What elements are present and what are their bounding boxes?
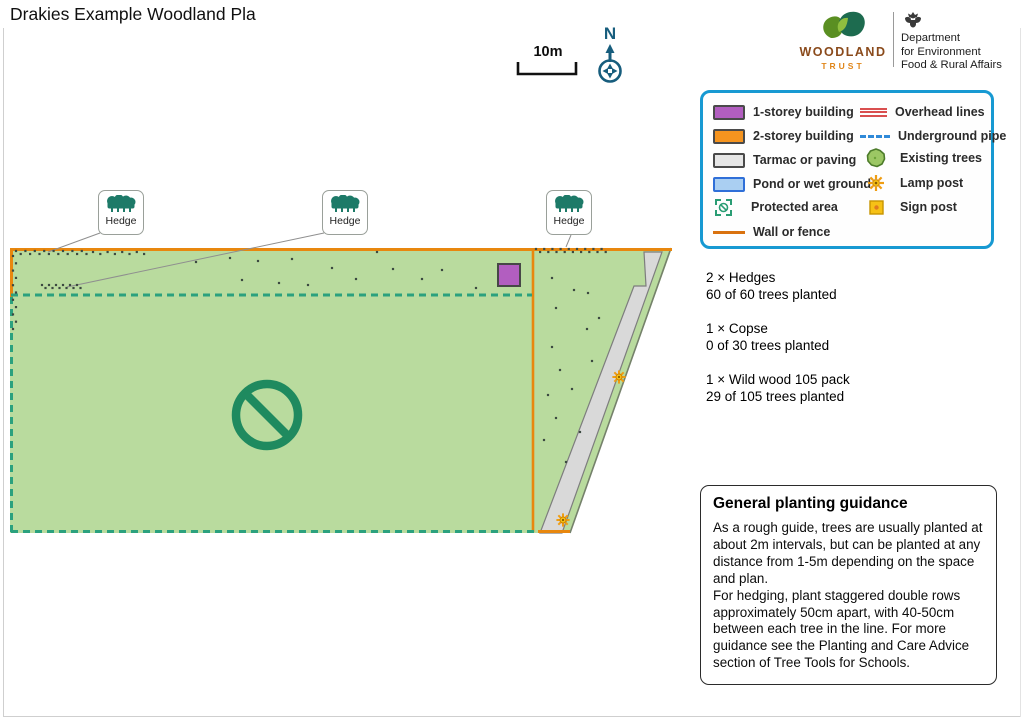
planted-tree-dot bbox=[69, 284, 71, 286]
hedge-icon bbox=[553, 195, 585, 214]
hedge-callout-label: Hedge bbox=[330, 215, 361, 227]
planted-tree-dot bbox=[12, 284, 14, 286]
planted-tree-dot bbox=[565, 461, 567, 463]
planted-tree-dot bbox=[12, 270, 14, 272]
planted-tree-dot bbox=[605, 251, 607, 253]
planted-tree-dot bbox=[551, 346, 553, 348]
hedge-callout: Hedge bbox=[546, 190, 592, 235]
planted-tree-dot bbox=[128, 253, 130, 255]
planted-tree-dot bbox=[43, 250, 45, 252]
planted-tree-dot bbox=[85, 253, 87, 255]
hedge-callout: Hedge bbox=[98, 190, 144, 235]
planted-tree-dot bbox=[62, 250, 64, 252]
planted-tree-dot bbox=[67, 253, 69, 255]
planted-tree-dot bbox=[99, 253, 101, 255]
planted-tree-dot bbox=[586, 328, 588, 330]
planted-tree-dot bbox=[307, 284, 309, 286]
leader-line bbox=[566, 235, 571, 247]
planted-tree-dot bbox=[580, 251, 582, 253]
planted-tree-dot bbox=[20, 253, 22, 255]
planted-tree-dot bbox=[257, 260, 259, 262]
planted-tree-dot bbox=[121, 251, 123, 253]
planted-tree-dot bbox=[571, 388, 573, 390]
planted-tree-dot bbox=[57, 253, 59, 255]
planted-tree-dot bbox=[573, 289, 575, 291]
planted-tree-dot bbox=[15, 262, 17, 264]
planted-tree-dot bbox=[38, 253, 40, 255]
planted-tree-dot bbox=[441, 269, 443, 271]
planted-tree-dot bbox=[143, 253, 145, 255]
planted-tree-dot bbox=[591, 360, 593, 362]
planted-tree-dot bbox=[44, 287, 46, 289]
planted-tree-dot bbox=[555, 251, 557, 253]
planted-tree-dot bbox=[568, 248, 570, 250]
planted-tree-dot bbox=[114, 253, 116, 255]
planted-tree-dot bbox=[29, 253, 31, 255]
planted-tree-dot bbox=[555, 307, 557, 309]
planted-tree-dot bbox=[12, 313, 14, 315]
planted-tree-dot bbox=[291, 258, 293, 260]
planted-tree-dot bbox=[539, 251, 541, 253]
planted-tree-dot bbox=[543, 439, 545, 441]
planted-tree-dot bbox=[555, 417, 557, 419]
one-storey-building bbox=[498, 264, 520, 286]
planted-tree-dot bbox=[136, 251, 138, 253]
planted-tree-dot bbox=[76, 253, 78, 255]
planted-tree-dot bbox=[58, 287, 60, 289]
planted-tree-dot bbox=[12, 255, 14, 257]
planted-tree-dot bbox=[576, 248, 578, 250]
planted-tree-dot bbox=[53, 250, 55, 252]
planted-tree-dot bbox=[107, 251, 109, 253]
hedge-icon bbox=[105, 195, 137, 214]
planted-tree-dot bbox=[92, 251, 94, 253]
plan-map bbox=[0, 0, 1024, 720]
planted-tree-dot bbox=[81, 250, 83, 252]
planted-tree-dot bbox=[588, 251, 590, 253]
planted-tree-dot bbox=[543, 248, 545, 250]
woodland-plan-page: { "header": { "title": "Drakies Example … bbox=[0, 0, 1024, 720]
planted-tree-dot bbox=[376, 251, 378, 253]
planted-tree-dot bbox=[579, 431, 581, 433]
planted-tree-dot bbox=[48, 253, 50, 255]
planted-tree-dot bbox=[559, 369, 561, 371]
lamp-post-icon bbox=[612, 370, 625, 383]
planted-tree-dot bbox=[331, 267, 333, 269]
planted-tree-dot bbox=[15, 250, 17, 252]
planted-tree-dot bbox=[564, 251, 566, 253]
planted-tree-dot bbox=[48, 284, 50, 286]
planted-tree-dot bbox=[278, 282, 280, 284]
planted-tree-dot bbox=[65, 287, 67, 289]
planted-tree-dot bbox=[12, 328, 14, 330]
planted-tree-dot bbox=[355, 278, 357, 280]
planted-tree-dot bbox=[547, 251, 549, 253]
planted-tree-dot bbox=[596, 251, 598, 253]
planted-tree-dot bbox=[547, 394, 549, 396]
hedge-callout: Hedge bbox=[322, 190, 368, 235]
planted-tree-dot bbox=[15, 321, 17, 323]
planted-tree-dot bbox=[195, 261, 197, 263]
planted-tree-dot bbox=[551, 248, 553, 250]
planted-tree-dot bbox=[551, 277, 553, 279]
planted-tree-dot bbox=[12, 299, 14, 301]
planted-tree-dot bbox=[55, 284, 57, 286]
planted-tree-dot bbox=[392, 268, 394, 270]
planted-tree-dot bbox=[572, 251, 574, 253]
planted-tree-dot bbox=[229, 257, 231, 259]
planted-tree-dot bbox=[76, 284, 78, 286]
planted-tree-dot bbox=[15, 291, 17, 293]
planted-tree-dot bbox=[592, 248, 594, 250]
planted-tree-dot bbox=[41, 284, 43, 286]
planted-tree-dot bbox=[24, 250, 26, 252]
hedge-icon bbox=[329, 195, 361, 214]
planted-tree-dot bbox=[421, 278, 423, 280]
planted-tree-dot bbox=[535, 248, 537, 250]
planted-tree-dot bbox=[584, 248, 586, 250]
planted-tree-dot bbox=[34, 250, 36, 252]
planted-tree-dot bbox=[71, 250, 73, 252]
hedge-callout-label: Hedge bbox=[554, 215, 585, 227]
planted-tree-dot bbox=[15, 306, 17, 308]
planted-tree-dot bbox=[79, 287, 81, 289]
lamp-post-icon bbox=[556, 513, 569, 526]
hedge-callout-label: Hedge bbox=[106, 215, 137, 227]
planted-tree-dot bbox=[601, 248, 603, 250]
planted-tree-dot bbox=[598, 317, 600, 319]
planted-tree-dot bbox=[51, 287, 53, 289]
planted-tree-dot bbox=[15, 277, 17, 279]
planted-tree-dot bbox=[241, 279, 243, 281]
planted-tree-dot bbox=[72, 287, 74, 289]
planted-tree-dot bbox=[62, 284, 64, 286]
planted-tree-dot bbox=[587, 292, 589, 294]
planted-tree-dot bbox=[560, 248, 562, 250]
planted-tree-dot bbox=[475, 287, 477, 289]
